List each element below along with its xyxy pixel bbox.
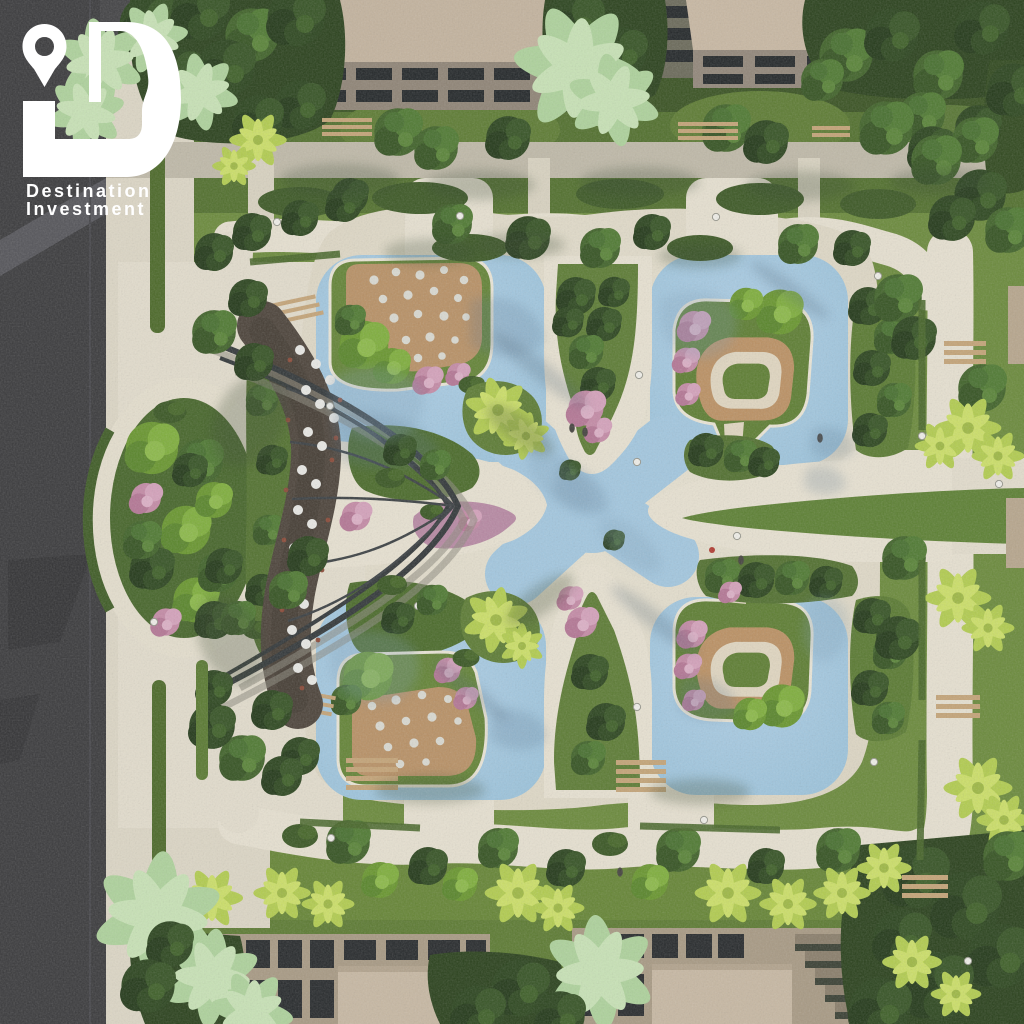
svg-text:Investment: Investment [26,199,146,219]
svg-text:Destination: Destination [26,181,152,201]
